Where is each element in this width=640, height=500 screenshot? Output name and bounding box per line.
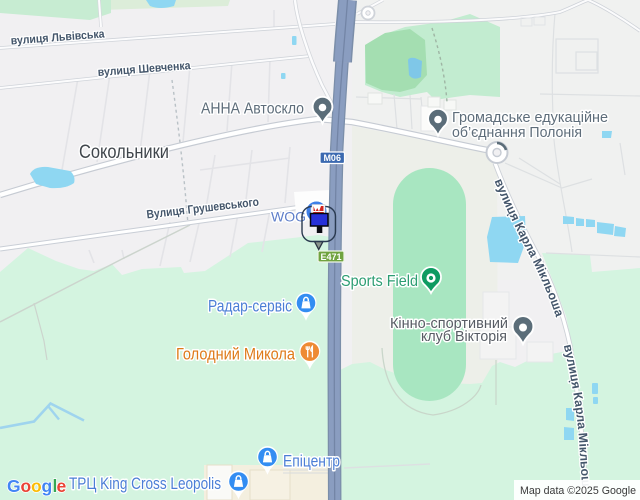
svg-text:Map data ©2025 Google: Map data ©2025 Google — [520, 485, 636, 497]
svg-text:АННА Автоскло: АННА Автоскло — [201, 101, 304, 118]
svg-text:E471: E471 — [320, 252, 341, 262]
svg-text:Сокольники: Сокольники — [79, 142, 169, 163]
svg-text:Радар-сервіс: Радар-сервіс — [208, 298, 292, 316]
svg-text:клуб Вікторія: клуб Вікторія — [421, 328, 507, 345]
svg-text:Sports Field: Sports Field — [341, 273, 418, 290]
svg-text:g: g — [42, 476, 53, 496]
svg-text:o: o — [31, 476, 42, 496]
svg-text:e: e — [57, 476, 67, 496]
svg-text:Голодний Микола: Голодний Микола — [176, 346, 295, 364]
svg-text:Епіцентр: Епіцентр — [283, 453, 340, 471]
svg-text:WOG: WOG — [271, 209, 306, 225]
svg-text:ТРЦ King Cross Leopolis: ТРЦ King Cross Leopolis — [69, 475, 221, 493]
svg-text:об’єднання Полонія: об’єднання Полонія — [452, 124, 582, 141]
svg-text:o: o — [21, 476, 32, 496]
svg-text:G: G — [7, 476, 21, 496]
svg-text:M06: M06 — [323, 153, 341, 163]
